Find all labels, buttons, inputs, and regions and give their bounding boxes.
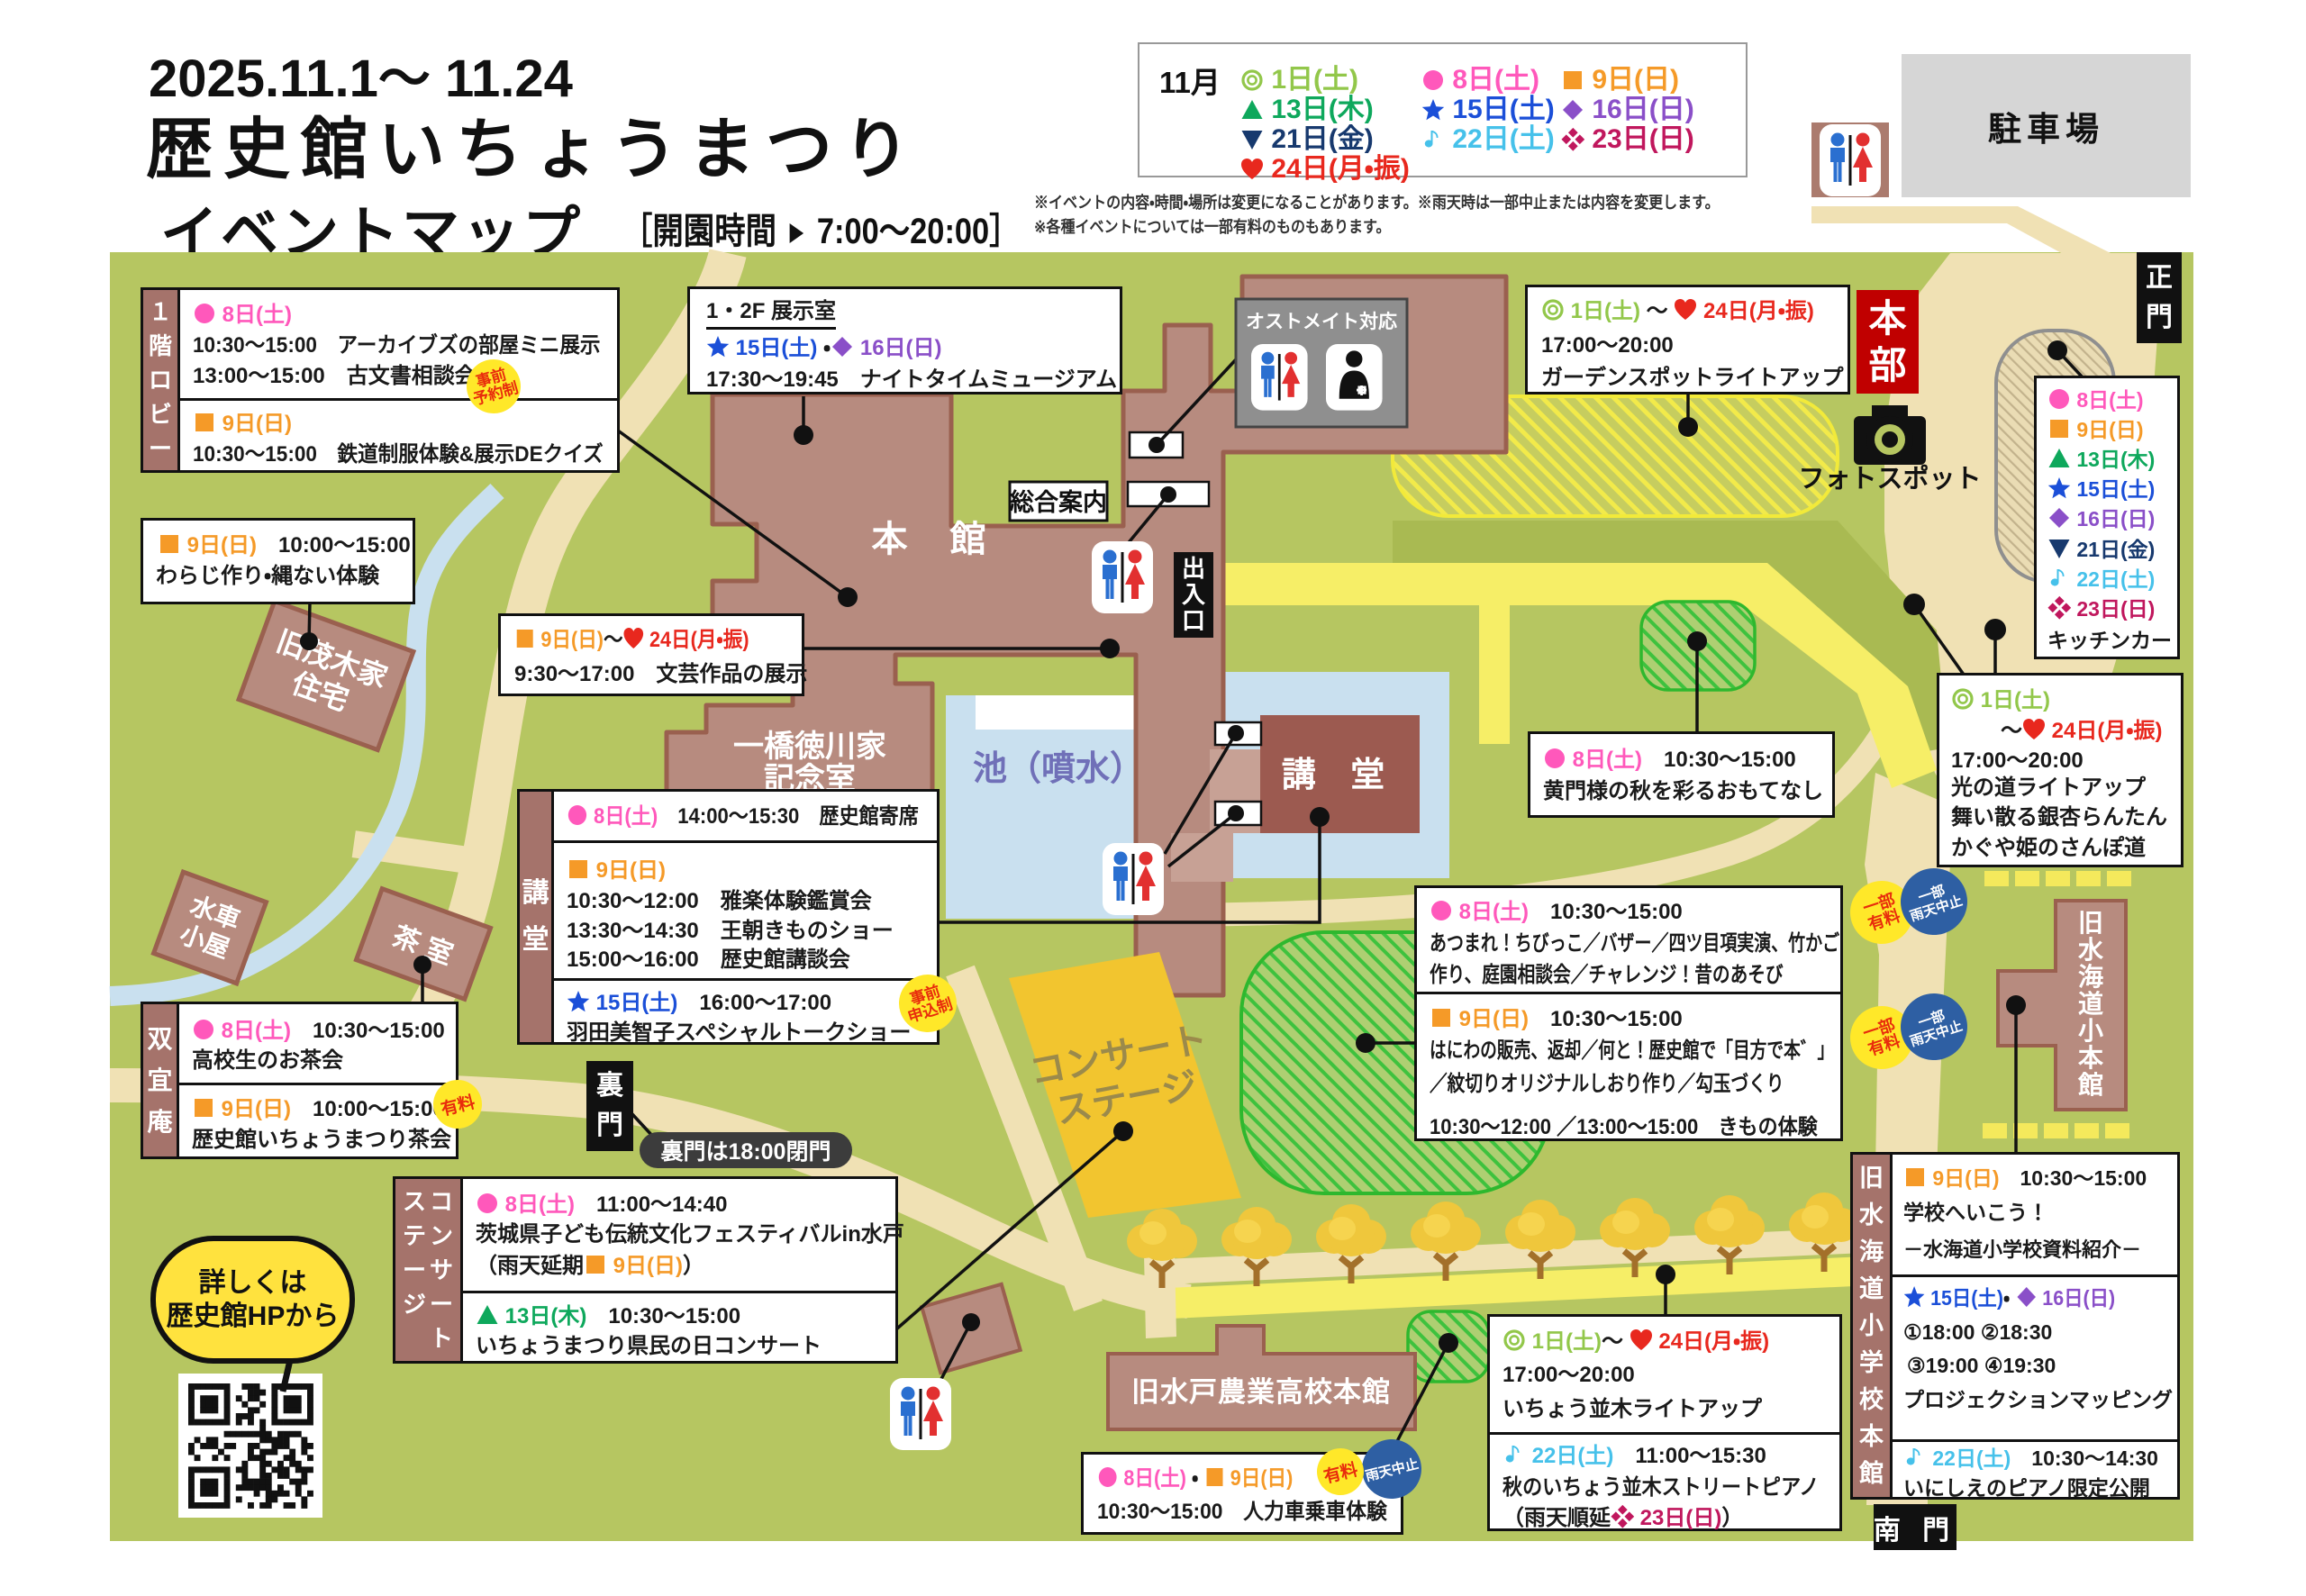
svg-text:総合案内: 総合案内	[1010, 488, 1107, 516]
svg-text:館: 館	[2077, 1071, 2103, 1099]
svg-text:旧水戸農業高校本館: 旧水戸農業高校本館	[1131, 1376, 1391, 1408]
svg-text:海: 海	[2078, 963, 2103, 991]
svg-text:オストメイト対応: オストメイト対応	[1246, 311, 1397, 332]
svg-text:道: 道	[2078, 990, 2103, 1018]
svg-text:池（噴水）: 池（噴水）	[973, 750, 1144, 788]
svg-text:フォトスポット: フォトスポット	[1798, 464, 1981, 494]
svg-text:本 館: 本 館	[871, 520, 1002, 559]
svg-text:水: 水	[2077, 936, 2104, 964]
svg-text:小: 小	[2078, 1017, 2103, 1045]
svg-text:一橋徳川家: 一橋徳川家	[733, 730, 886, 764]
svg-text:旧: 旧	[2078, 909, 2103, 937]
svg-text:講 堂: 講 堂	[1282, 757, 1398, 794]
svg-text:本: 本	[2078, 1044, 2104, 1072]
